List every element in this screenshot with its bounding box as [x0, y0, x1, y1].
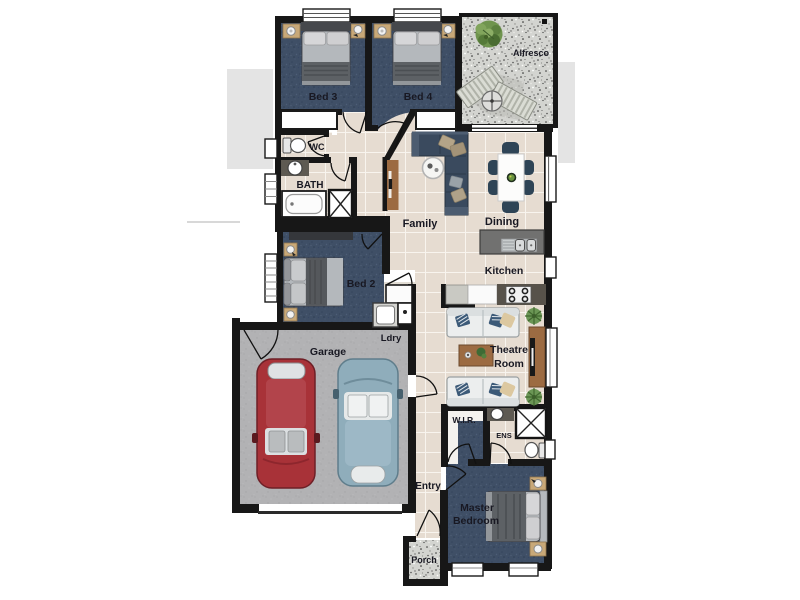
svg-text:Theatre: Theatre: [490, 344, 528, 356]
svg-text:Bed 4: Bed 4: [404, 91, 433, 103]
svg-text:Bed 2: Bed 2: [347, 278, 376, 290]
svg-text:WC: WC: [310, 142, 325, 152]
svg-text:Porch: Porch: [411, 555, 437, 565]
svg-text:Kitchen: Kitchen: [485, 265, 524, 277]
svg-text:Dining: Dining: [485, 216, 519, 228]
svg-text:Bed 3: Bed 3: [309, 91, 338, 103]
svg-text:Room: Room: [494, 358, 524, 370]
svg-text:ENS: ENS: [496, 431, 511, 440]
svg-text:BATH: BATH: [296, 180, 323, 191]
svg-text:Ldry: Ldry: [381, 333, 402, 344]
svg-text:Alfresco: Alfresco: [513, 48, 550, 58]
svg-text:Bedroom: Bedroom: [453, 515, 499, 527]
svg-text:W.I.R.: W.I.R.: [452, 415, 475, 425]
svg-text:Entry: Entry: [415, 481, 441, 492]
svg-text:Master: Master: [460, 502, 494, 514]
svg-text:Family: Family: [403, 218, 439, 230]
svg-text:Garage: Garage: [310, 346, 346, 358]
